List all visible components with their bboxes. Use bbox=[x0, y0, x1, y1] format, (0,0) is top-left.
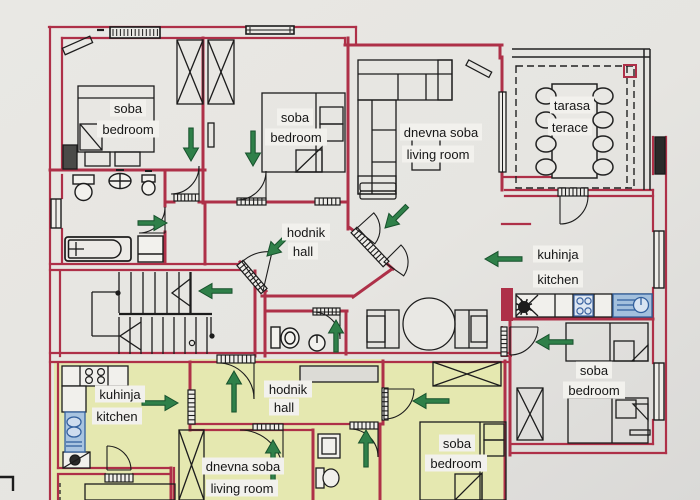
svg-text:bedroom: bedroom bbox=[102, 122, 153, 137]
svg-text:soba: soba bbox=[443, 436, 472, 451]
svg-text:tarasa: tarasa bbox=[554, 98, 591, 113]
svg-text:living room: living room bbox=[407, 147, 470, 162]
svg-text:hodnik: hodnik bbox=[287, 225, 326, 240]
svg-text:bedroom: bedroom bbox=[568, 383, 619, 398]
svg-text:bedroom: bedroom bbox=[430, 456, 481, 471]
svg-text:kitchen: kitchen bbox=[96, 409, 137, 424]
svg-text:kitchen: kitchen bbox=[537, 272, 578, 287]
svg-text:kuhinja: kuhinja bbox=[537, 247, 579, 262]
svg-text:living room: living room bbox=[211, 481, 274, 496]
svg-text:dnevna soba: dnevna soba bbox=[404, 125, 479, 140]
svg-text:hall: hall bbox=[293, 244, 313, 259]
svg-text:soba: soba bbox=[281, 110, 310, 125]
svg-text:dnevna soba: dnevna soba bbox=[206, 459, 281, 474]
svg-text:soba: soba bbox=[114, 101, 143, 116]
svg-text:terace: terace bbox=[552, 120, 588, 135]
svg-text:hall: hall bbox=[274, 400, 294, 415]
svg-text:kuhinja: kuhinja bbox=[99, 387, 141, 402]
svg-text:hodnik: hodnik bbox=[269, 382, 308, 397]
svg-text:soba: soba bbox=[580, 363, 609, 378]
svg-text:bedroom: bedroom bbox=[270, 130, 321, 145]
